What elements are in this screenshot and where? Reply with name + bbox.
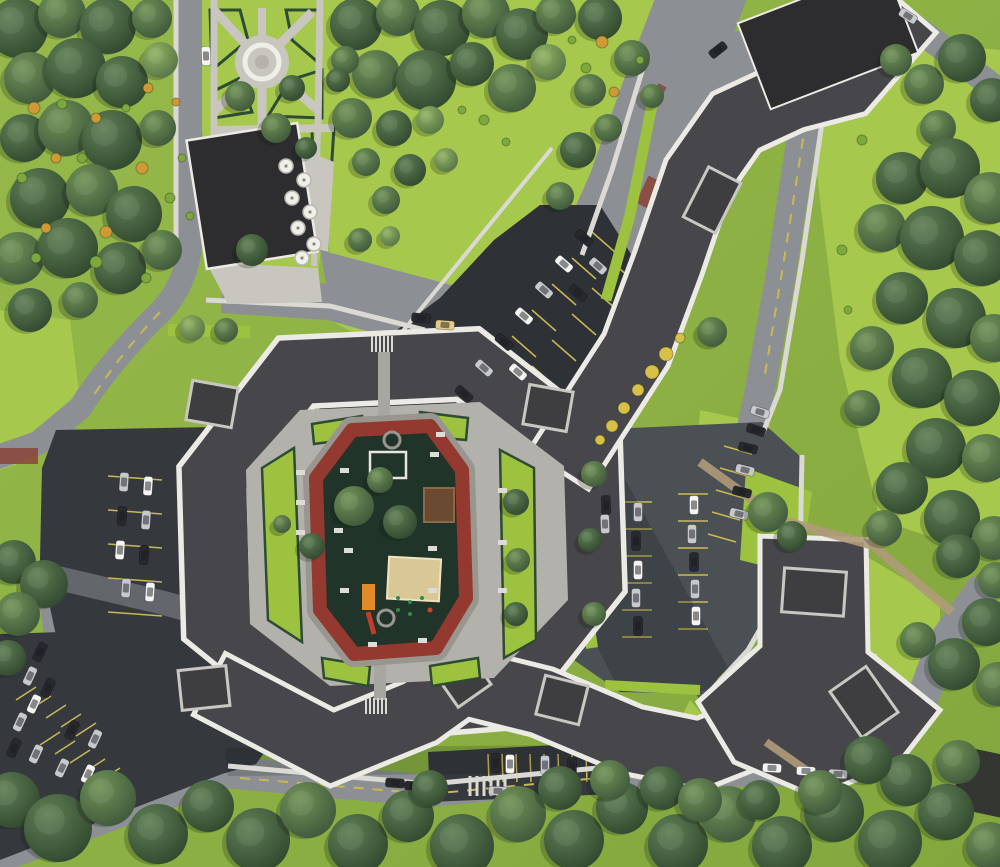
tree-highlight	[884, 470, 907, 493]
tree-highlight	[754, 498, 772, 516]
tree-highlight	[422, 8, 447, 33]
tree-highlight	[929, 147, 956, 174]
tree-highlight	[969, 605, 991, 627]
tree-highlight	[598, 118, 611, 131]
car	[145, 582, 155, 602]
tree-highlight	[67, 287, 83, 303]
car	[141, 510, 151, 530]
play-equipment	[428, 546, 437, 551]
tree-highlight	[145, 115, 161, 131]
car-glass	[440, 322, 449, 329]
car	[201, 46, 211, 65]
tree-highlight	[495, 71, 517, 93]
planting-strip	[605, 685, 700, 690]
raised-roof	[536, 675, 588, 724]
raised-roof	[186, 380, 238, 427]
umbrella-pole	[284, 164, 287, 167]
car	[691, 580, 700, 599]
tree-highlight	[943, 747, 963, 767]
tree-highlight	[782, 526, 796, 540]
bush	[141, 273, 151, 283]
car	[688, 525, 697, 544]
bush	[609, 87, 619, 97]
car-glass	[416, 315, 426, 322]
tree-highlight	[241, 239, 255, 253]
car	[385, 778, 405, 788]
tree-highlight	[440, 824, 469, 853]
car-glass	[633, 594, 639, 603]
tree-highlight	[925, 115, 941, 131]
tree-highlight	[542, 0, 560, 18]
tree-highlight	[962, 238, 987, 263]
tree-highlight	[303, 537, 315, 549]
car	[632, 532, 641, 551]
tree-highlight	[218, 322, 229, 333]
car-glass	[121, 477, 128, 486]
tree-highlight	[915, 427, 942, 454]
tree-highlight	[905, 627, 921, 643]
bush	[581, 63, 591, 73]
tree-highlight	[74, 172, 97, 195]
bush	[100, 226, 112, 238]
tree-highlight	[945, 41, 967, 63]
umbrella-pole	[308, 210, 311, 213]
car	[600, 514, 610, 533]
tree-highlight	[901, 357, 928, 384]
tree-highlight	[619, 45, 635, 61]
play-equipment	[430, 452, 439, 457]
bush	[57, 99, 67, 109]
raised-roof	[178, 666, 230, 711]
tree-highlight	[352, 232, 363, 243]
tree-highlight	[972, 180, 995, 203]
car	[121, 578, 131, 598]
play-equipment	[498, 488, 507, 493]
car-glass	[603, 500, 609, 509]
bush	[837, 245, 847, 255]
play-equipment	[334, 528, 343, 533]
tree-highlight	[276, 518, 284, 526]
tree-highlight	[390, 798, 413, 821]
bush	[77, 153, 87, 163]
car	[690, 496, 699, 515]
raised-roof	[523, 384, 573, 431]
car	[411, 313, 431, 324]
tree-highlight	[114, 194, 139, 219]
tree-highlight	[884, 160, 907, 183]
bush	[143, 83, 153, 93]
play-equipment	[436, 432, 445, 437]
tree-highlight	[34, 804, 65, 835]
car	[119, 472, 129, 492]
bush	[596, 36, 608, 48]
tree-highlight	[7, 121, 29, 143]
bush	[178, 154, 186, 162]
tree-highlight	[932, 498, 957, 523]
bush	[172, 98, 180, 106]
car-glass	[145, 481, 152, 490]
planting-circle	[378, 610, 394, 626]
tree-highlight	[88, 778, 113, 803]
tree-highlight	[0, 240, 23, 263]
bush	[31, 253, 41, 263]
tree-highlight	[535, 49, 551, 65]
tree-highlight	[298, 140, 308, 150]
tree-highlight	[12, 60, 35, 83]
bush	[502, 138, 510, 146]
tree-highlight	[283, 79, 295, 91]
car-glass	[117, 545, 124, 554]
play-equipment	[340, 468, 349, 473]
umbrella-pole	[296, 226, 299, 229]
play-equipment	[296, 500, 305, 505]
tree-highlight	[266, 118, 280, 132]
bush	[844, 306, 852, 314]
site-plan-render	[0, 0, 1000, 867]
bush	[636, 56, 644, 64]
tree-highlight	[805, 777, 825, 797]
bush	[479, 115, 489, 125]
tree-highlight	[952, 378, 977, 403]
tree-highlight	[983, 567, 999, 583]
play-equipment	[296, 470, 305, 475]
play-equipment	[344, 548, 353, 553]
bush	[51, 153, 61, 163]
tree-highlight	[585, 465, 597, 477]
play-equipment	[296, 530, 305, 535]
bush	[857, 135, 867, 145]
play-dot	[420, 596, 424, 600]
tree-highlight	[969, 441, 991, 463]
car-glass	[767, 765, 776, 771]
tree-highlight	[857, 333, 877, 353]
bush	[568, 36, 576, 44]
tree-highlight	[190, 788, 213, 811]
car-glass	[493, 759, 499, 768]
tree-highlight	[884, 280, 907, 303]
car	[762, 763, 781, 773]
bush	[458, 106, 466, 114]
raised-roof	[782, 568, 847, 616]
car-glass	[542, 761, 548, 770]
tree-highlight	[399, 159, 413, 173]
crosswalk	[0, 448, 38, 464]
masterplan-canvas	[0, 0, 1000, 867]
bush	[136, 162, 148, 174]
car-glass	[691, 558, 697, 567]
car-glass	[689, 530, 695, 539]
car-glass	[507, 760, 513, 769]
bush	[28, 102, 40, 114]
tree-highlight	[507, 493, 519, 505]
tree-highlight	[565, 137, 581, 153]
tree-highlight	[849, 395, 865, 411]
bush	[595, 435, 605, 445]
bush	[659, 347, 673, 361]
play-dot	[408, 612, 412, 616]
play-dot	[396, 596, 400, 600]
tree-highlight	[685, 785, 705, 805]
fountain-center	[255, 55, 269, 69]
tree-highlight	[510, 552, 521, 563]
car-glass	[141, 550, 148, 559]
tree-highlight	[586, 606, 597, 617]
tree-highlight	[865, 211, 887, 233]
tree-highlight	[943, 541, 963, 561]
tree-highlight	[579, 79, 593, 93]
tree-highlight	[550, 186, 563, 199]
tree-highlight	[498, 794, 523, 819]
car	[506, 755, 515, 774]
tree-highlight	[746, 786, 764, 804]
tree-highlight	[457, 49, 477, 69]
tree-highlight	[288, 790, 313, 815]
car	[634, 617, 643, 636]
bush	[165, 193, 175, 203]
car	[634, 561, 643, 580]
tree-highlight	[761, 825, 788, 852]
tree-highlight	[977, 85, 997, 105]
tree-highlight	[868, 820, 897, 849]
car	[601, 495, 611, 514]
tree-highlight	[647, 773, 667, 793]
car	[634, 503, 643, 522]
tree-highlight	[936, 646, 959, 669]
tree-highlight	[236, 818, 265, 847]
car	[690, 553, 699, 572]
tree-highlight	[148, 236, 166, 254]
car-glass	[635, 566, 641, 575]
play-equipment	[498, 588, 507, 593]
tree-highlight	[102, 250, 125, 273]
tree-highlight	[545, 773, 565, 793]
tree-highlight	[55, 47, 82, 74]
car	[632, 589, 641, 608]
umbrella-pole	[302, 178, 305, 181]
car	[492, 754, 501, 773]
play-equipment	[340, 588, 349, 593]
car	[435, 320, 455, 330]
play-dot	[396, 608, 400, 612]
tree-highlight	[46, 108, 71, 133]
tree-highlight	[356, 152, 369, 165]
tree-highlight	[910, 70, 928, 88]
tree-highlight	[335, 50, 348, 63]
tree-highlight	[973, 829, 995, 851]
bush	[618, 402, 630, 414]
car-glass	[693, 612, 699, 621]
tree-highlight	[376, 190, 389, 203]
tree-highlight	[138, 4, 156, 22]
play-equipment	[418, 638, 427, 643]
tree-highlight	[3, 599, 23, 619]
tree-highlight	[359, 57, 381, 79]
car-glass	[390, 780, 399, 787]
tree-highlight	[885, 49, 899, 63]
umbrella-pole	[312, 242, 315, 245]
tree-highlight	[330, 72, 341, 83]
park-path	[318, 0, 320, 130]
planting-circle	[384, 432, 400, 448]
car	[143, 476, 153, 496]
car	[139, 545, 149, 565]
tree-highlight	[147, 47, 163, 63]
tree-highlight	[926, 792, 951, 817]
tree-highlight	[910, 216, 939, 245]
bush	[606, 420, 618, 432]
tree-highlight	[338, 104, 356, 122]
bush	[91, 113, 101, 123]
car-glass	[633, 537, 639, 546]
tree-highlight	[88, 6, 113, 31]
bush	[122, 104, 130, 112]
tree-highlight	[504, 16, 527, 39]
tree-highlight	[596, 766, 614, 784]
tree-highlight	[47, 227, 74, 254]
tree-highlight	[657, 823, 684, 850]
bush	[632, 384, 644, 396]
bush	[17, 173, 27, 183]
tree-highlight	[104, 64, 127, 87]
tree-highlight	[338, 6, 361, 29]
bush	[645, 365, 659, 379]
tree-highlight	[388, 510, 403, 525]
tree-highlight	[585, 3, 605, 23]
tree-highlight	[27, 567, 49, 589]
car-glass	[143, 515, 150, 524]
car-glass	[147, 587, 154, 596]
play-dot	[408, 600, 412, 604]
car-glass	[692, 585, 698, 594]
car	[117, 506, 127, 526]
tree-highlight	[979, 523, 999, 543]
tree-highlight	[508, 606, 519, 617]
tree-highlight	[871, 515, 887, 531]
bush	[675, 333, 685, 343]
tree-highlight	[183, 319, 195, 331]
car-glass	[635, 508, 641, 517]
umbrella-pole	[300, 256, 303, 259]
tree-highlight	[340, 492, 358, 510]
tree-highlight	[337, 823, 364, 850]
tree-highlight	[230, 86, 244, 100]
car	[115, 540, 125, 560]
tree-highlight	[383, 229, 392, 238]
tree-highlight	[137, 813, 164, 840]
tree-highlight	[851, 743, 873, 765]
bush	[41, 223, 51, 233]
tree-highlight	[977, 321, 999, 343]
tree-highlight	[405, 59, 432, 86]
play-tower	[362, 584, 375, 610]
tree-highlight	[15, 295, 35, 315]
tree-highlight	[644, 88, 655, 99]
bush	[90, 256, 102, 268]
car-glass	[691, 501, 697, 510]
car-glass	[635, 622, 641, 631]
car-glass	[203, 51, 209, 60]
courtyard-bed	[262, 448, 302, 642]
tree-highlight	[438, 152, 449, 163]
car-glass	[119, 511, 126, 520]
umbrella-pole	[290, 196, 293, 199]
play-dot-red	[428, 608, 433, 613]
tree-highlight	[935, 297, 962, 324]
gazebo	[424, 488, 454, 522]
tree-highlight	[381, 115, 397, 131]
car-glass	[123, 583, 130, 592]
tree-highlight	[371, 471, 383, 483]
car-glass	[602, 519, 608, 528]
car	[692, 607, 701, 626]
bush	[186, 212, 194, 220]
play-equipment	[498, 540, 507, 545]
tree-highlight	[702, 322, 716, 336]
play-equipment	[368, 642, 377, 647]
tree-highlight	[582, 532, 593, 543]
tree-highlight	[417, 775, 433, 791]
sandbox	[387, 557, 441, 602]
play-equipment	[428, 588, 437, 593]
tree-highlight	[553, 819, 580, 846]
tree-highlight	[420, 110, 433, 123]
